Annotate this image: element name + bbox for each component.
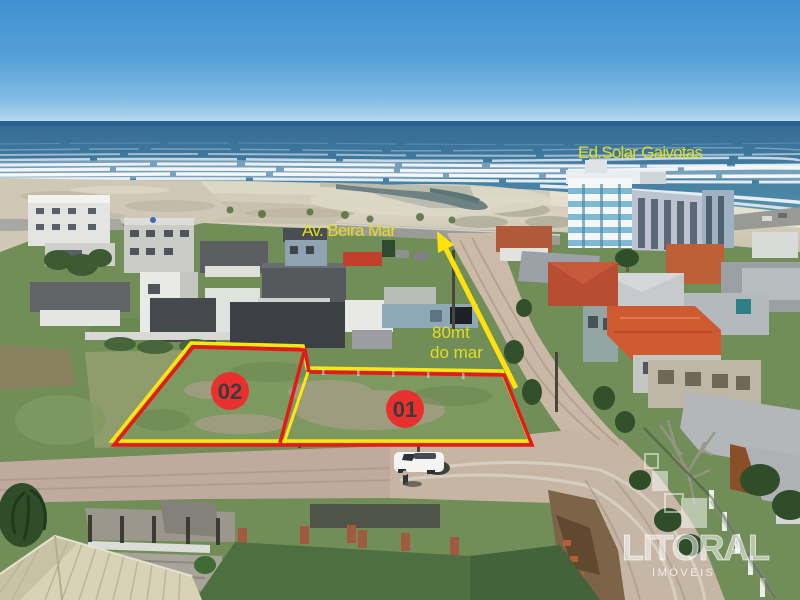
svg-text:do mar: do mar: [430, 343, 483, 362]
svg-text:Ed.Solar Gaivotas: Ed.Solar Gaivotas: [578, 143, 703, 162]
svg-text:01: 01: [393, 397, 417, 422]
svg-text:80mt: 80mt: [432, 323, 470, 342]
svg-text:LITORAL: LITORAL: [622, 527, 770, 568]
svg-text:Av. Beira Mar: Av. Beira Mar: [302, 221, 396, 240]
svg-text:IMÓVEIS: IMÓVEIS: [652, 566, 715, 579]
svg-text:02: 02: [218, 379, 242, 404]
